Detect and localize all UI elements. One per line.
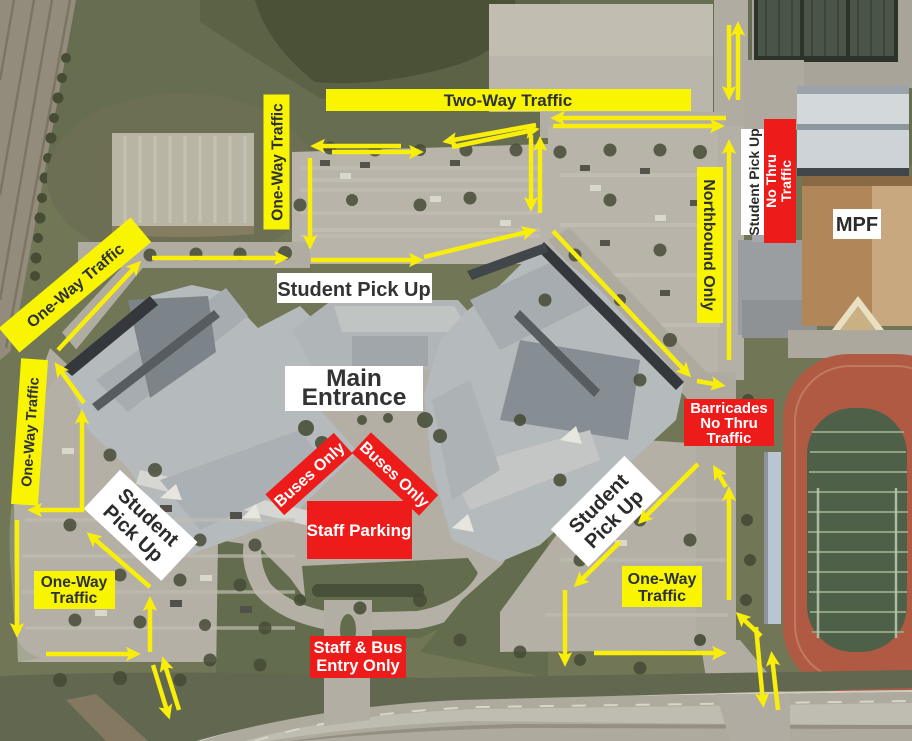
svg-text:MPF: MPF: [836, 214, 878, 236]
svg-text:Northbound Only: Northbound Only: [700, 179, 717, 311]
svg-text:Student Pick Up: Student Pick Up: [277, 279, 430, 301]
svg-text:One-Way: One-Way: [41, 574, 108, 591]
svg-text:Entrance: Entrance: [302, 384, 407, 411]
svg-text:Staff Parking: Staff Parking: [307, 521, 412, 540]
svg-text:One-Way: One-Way: [628, 571, 697, 588]
svg-text:Student Pick Up: Student Pick Up: [746, 128, 762, 235]
svg-text:No Thru: No Thru: [763, 154, 779, 208]
svg-text:Staff & Bus: Staff & Bus: [314, 639, 403, 657]
svg-text:Traffic: Traffic: [778, 160, 794, 202]
svg-text:Traffic: Traffic: [638, 588, 686, 605]
svg-text:One-Way Traffic: One-Way Traffic: [270, 103, 287, 221]
svg-text:Traffic: Traffic: [706, 430, 751, 447]
svg-text:Traffic: Traffic: [51, 590, 98, 607]
svg-text:Two-Way Traffic: Two-Way Traffic: [444, 91, 572, 110]
svg-text:Entry Only: Entry Only: [316, 657, 400, 675]
